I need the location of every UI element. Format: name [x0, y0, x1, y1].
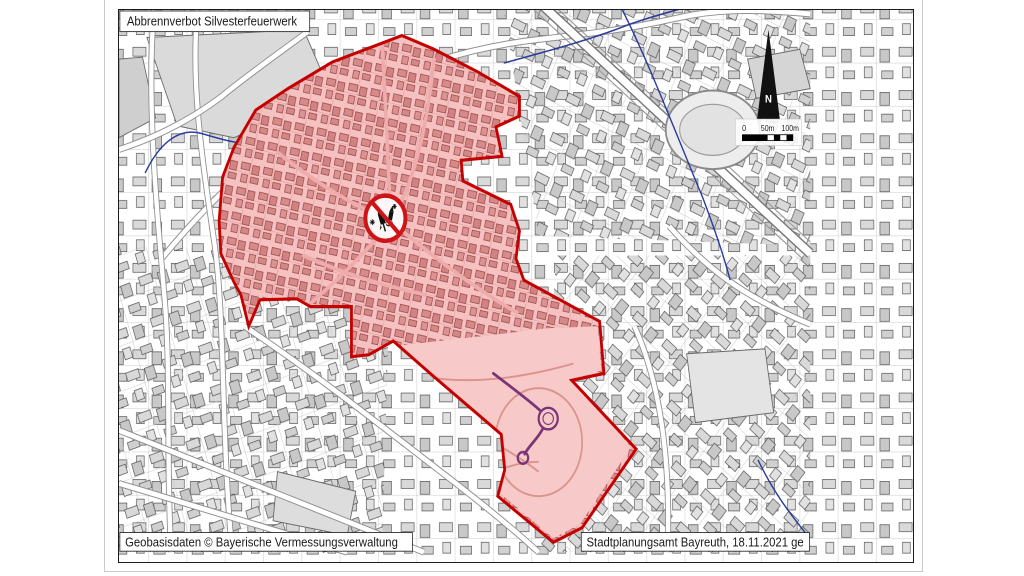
- no-fireworks-icon: [365, 196, 405, 241]
- screenshot-canvas: N 0 50m 100m Abbrennverbot Silvesterfe: [0, 0, 1024, 576]
- scale-tick-0: 0: [742, 123, 746, 133]
- map-sheet: N 0 50m 100m Abbrennverbot Silvesterfe: [104, 0, 923, 572]
- map-title: Abbrennverbot Silvesterfeuerwerk: [127, 14, 298, 29]
- scale-tick-50: 50m: [761, 123, 775, 133]
- scale-bar: 0 50m 100m: [735, 119, 801, 146]
- scale-tick-100: 100m: [782, 123, 799, 133]
- city-map: N 0 50m 100m Abbrennverbot Silvesterfe: [119, 10, 913, 562]
- credit-left-box: Geobasisdaten © Bayerische Vermessungsve…: [120, 533, 413, 552]
- credit-right-box: Stadtplanungsamt Bayreuth, 18.11.2021 ge: [581, 533, 809, 552]
- map-title-box: Abbrennverbot Silvesterfeuerwerk: [120, 11, 310, 32]
- credit-right: Stadtplanungsamt Bayreuth, 18.11.2021 ge: [587, 535, 804, 550]
- north-arrow-label: N: [765, 94, 772, 106]
- map-frame: N 0 50m 100m Abbrennverbot Silvesterfe: [118, 9, 914, 563]
- credit-left: Geobasisdaten © Bayerische Vermessungsve…: [125, 535, 398, 550]
